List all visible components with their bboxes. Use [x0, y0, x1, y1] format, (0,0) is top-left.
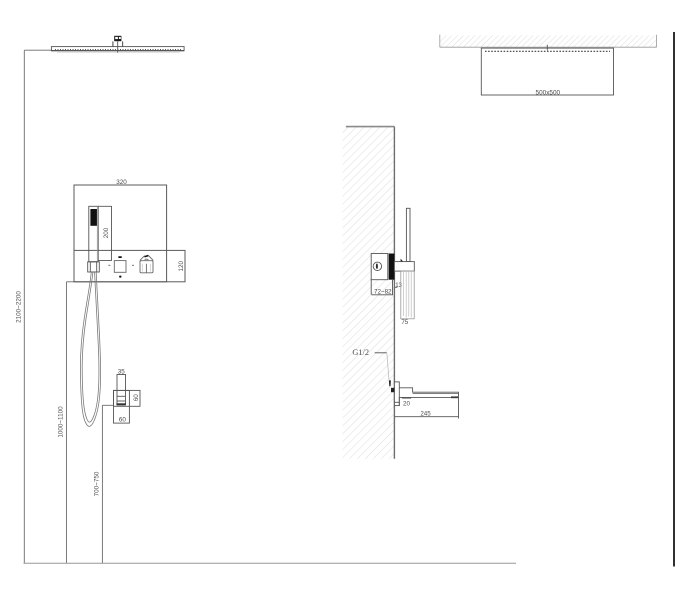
svg-text:60: 60: [119, 416, 127, 423]
svg-text:1000~1100: 1000~1100: [58, 406, 65, 438]
svg-text:75: 75: [401, 319, 408, 326]
svg-text:72~82: 72~82: [374, 289, 392, 296]
svg-text:120: 120: [178, 260, 185, 271]
svg-text:60: 60: [133, 394, 140, 402]
svg-text:20: 20: [403, 400, 410, 407]
svg-text:35: 35: [118, 368, 126, 375]
svg-text:G1/2: G1/2: [352, 348, 369, 357]
svg-text:500x500: 500x500: [536, 89, 561, 96]
svg-text:245: 245: [420, 411, 431, 418]
svg-text:320: 320: [116, 179, 127, 186]
svg-text:700~750: 700~750: [94, 471, 101, 496]
svg-text:2100~2200: 2100~2200: [16, 291, 23, 323]
svg-text:200: 200: [103, 227, 110, 238]
